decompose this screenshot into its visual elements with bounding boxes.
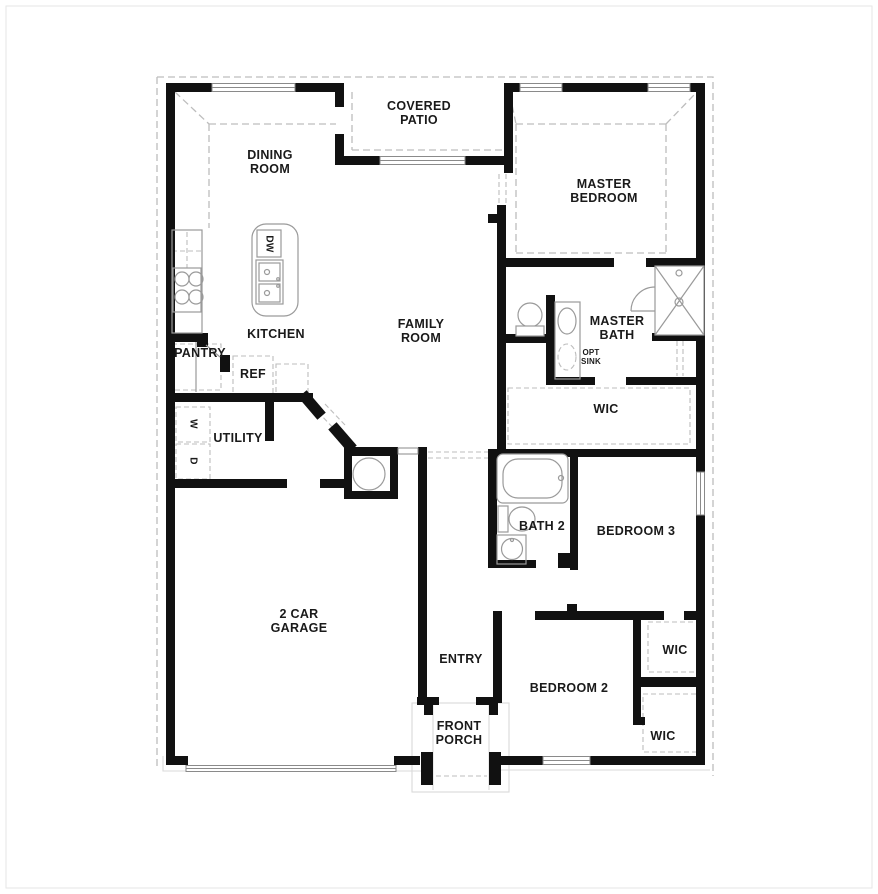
kitchen-counter: [172, 230, 202, 333]
burner-icon: [175, 272, 189, 286]
room-label-entry: ENTRY: [439, 652, 482, 666]
window-master-2: [648, 84, 690, 92]
fixture-label-optional-sink: OPT SINK: [581, 348, 601, 366]
floor-plan: COVERED PATIO DINING ROOM MASTER BEDROOM…: [0, 0, 878, 894]
room-label-wic-bedroom-2: WIC: [650, 729, 675, 743]
room-label-dining-room: DINING ROOM: [247, 148, 293, 176]
shower-door-swing: [631, 287, 655, 311]
room-label-bedroom-3: BEDROOM 3: [597, 524, 675, 538]
bedroom2-wic-shelves: [643, 694, 701, 752]
fixture-label-refrigerator: REF: [240, 367, 266, 381]
closet-dashed-outlines: [172, 232, 701, 752]
window-master-1: [520, 84, 562, 92]
burner-icon: [175, 290, 189, 304]
fixture-label-dryer: D: [187, 457, 198, 465]
optional-sink-icon: [558, 344, 576, 370]
master-wic-shelves: [508, 388, 690, 444]
room-label-utility: UTILITY: [213, 431, 262, 445]
window-bedroom2: [543, 757, 590, 765]
floor-plan-drawing: [0, 0, 878, 894]
counter-box: [276, 364, 308, 394]
room-label-wic-bedroom-3: WIC: [662, 643, 687, 657]
room-label-kitchen: KITCHEN: [247, 327, 305, 341]
room-label-family-room: FAMILY ROOM: [398, 317, 444, 345]
room-label-master-bath: MASTER BATH: [590, 314, 645, 342]
kitchen-fixtures: [172, 224, 298, 333]
window-bedroom3: [697, 472, 705, 515]
room-label-bedroom-2: BEDROOM 2: [530, 681, 608, 695]
toilet-icon: [518, 303, 542, 327]
room-label-wic-master: WIC: [593, 402, 618, 416]
fixture-label-dishwasher: DW: [263, 235, 274, 252]
sink-icon: [558, 308, 576, 334]
water-heater-closet-door: [398, 448, 418, 454]
window-patio-slider: [380, 157, 465, 165]
room-label-master-bedroom: MASTER BEDROOM: [570, 177, 637, 205]
bath2-fixtures: [497, 454, 568, 564]
bathtub: [497, 454, 568, 503]
image-border: [6, 6, 872, 888]
toilet-tank: [498, 506, 508, 532]
exterior-thin-lines: [163, 703, 710, 792]
water-heater-icon: [353, 458, 385, 490]
room-label-covered-patio: COVERED PATIO: [387, 99, 451, 127]
fixture-label-washer: W: [187, 419, 198, 429]
room-label-bath-2: BATH 2: [519, 519, 565, 533]
room-label-front-porch: FRONT PORCH: [436, 719, 483, 747]
toilet-tank: [516, 326, 544, 336]
garage-door: [186, 766, 396, 772]
window-dining: [212, 84, 295, 92]
room-label-garage: 2 CAR GARAGE: [271, 607, 328, 635]
room-label-pantry: PANTRY: [174, 346, 226, 360]
